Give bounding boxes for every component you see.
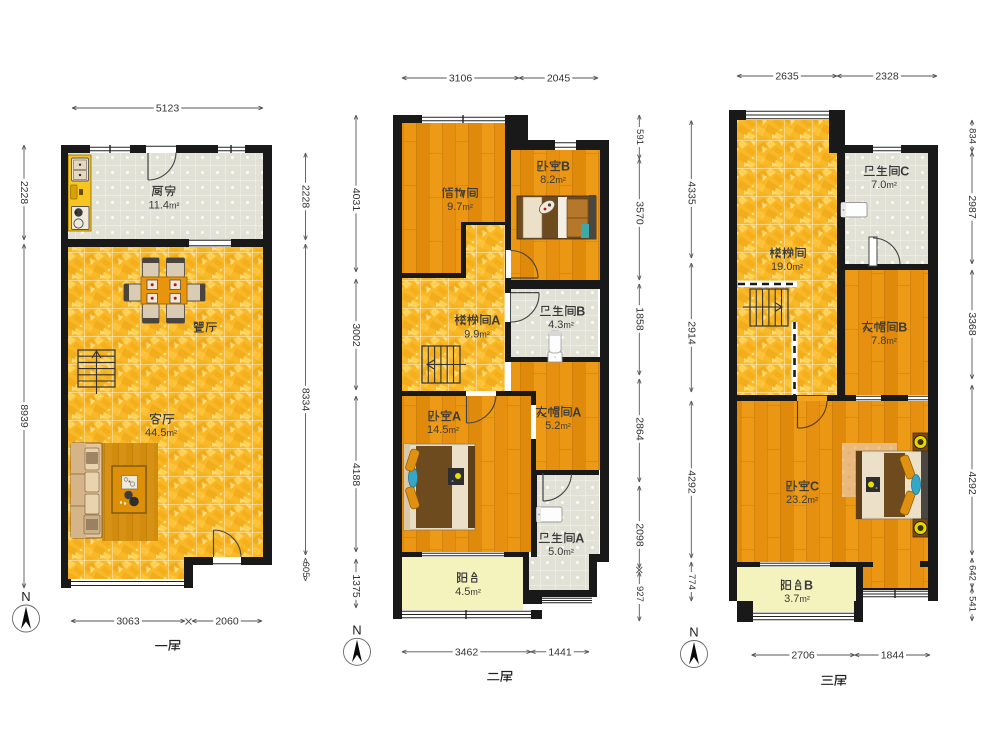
svg-text:2914: 2914 bbox=[685, 321, 697, 345]
svg-text:2635: 2635 bbox=[775, 71, 799, 83]
svg-text:591: 591 bbox=[634, 129, 645, 145]
svg-text:3462: 3462 bbox=[455, 646, 479, 658]
svg-text:3570: 3570 bbox=[633, 201, 645, 225]
svg-text:4335: 4335 bbox=[685, 181, 697, 205]
svg-text:19.0m²: 19.0m² bbox=[771, 261, 803, 273]
svg-text:2060: 2060 bbox=[215, 616, 239, 628]
svg-text:2706: 2706 bbox=[791, 650, 815, 662]
svg-text:1858: 1858 bbox=[633, 307, 645, 331]
svg-text:2045: 2045 bbox=[547, 73, 571, 85]
svg-text:C: C bbox=[900, 165, 909, 179]
svg-text:A: A bbox=[452, 410, 461, 424]
svg-text:7.0m²: 7.0m² bbox=[871, 179, 897, 191]
svg-text:774: 774 bbox=[686, 574, 697, 590]
svg-text:3063: 3063 bbox=[116, 616, 140, 628]
svg-text:44.5m²: 44.5m² bbox=[145, 427, 177, 439]
svg-text:1844: 1844 bbox=[881, 650, 905, 662]
svg-text:3002: 3002 bbox=[350, 323, 362, 347]
svg-text:B: B bbox=[561, 160, 570, 174]
svg-text:4292: 4292 bbox=[966, 471, 978, 495]
svg-text:4292: 4292 bbox=[685, 470, 697, 494]
svg-text:642: 642 bbox=[967, 565, 978, 581]
svg-text:5.2m²: 5.2m² bbox=[545, 420, 571, 432]
svg-text:2228: 2228 bbox=[300, 185, 312, 209]
svg-text:1441: 1441 bbox=[548, 646, 572, 658]
svg-text:B: B bbox=[804, 579, 813, 593]
svg-text:4.3m²: 4.3m² bbox=[548, 319, 574, 331]
svg-text:N: N bbox=[689, 625, 698, 640]
svg-text:2098: 2098 bbox=[633, 523, 645, 547]
svg-text:1375: 1375 bbox=[350, 574, 362, 598]
svg-text:14.5m²: 14.5m² bbox=[427, 424, 459, 436]
svg-text:A: A bbox=[572, 406, 581, 420]
svg-text:605: 605 bbox=[300, 562, 311, 578]
svg-text:23.2m²: 23.2m² bbox=[786, 494, 818, 506]
svg-text:3.7m²: 3.7m² bbox=[784, 593, 810, 605]
svg-text:4031: 4031 bbox=[350, 188, 362, 212]
svg-text:927: 927 bbox=[634, 586, 645, 602]
svg-text:2987: 2987 bbox=[966, 195, 978, 219]
svg-text:5.0m²: 5.0m² bbox=[548, 546, 574, 558]
svg-text:4.5m²: 4.5m² bbox=[455, 586, 481, 598]
svg-text:8334: 8334 bbox=[300, 388, 312, 412]
svg-text:3106: 3106 bbox=[449, 73, 473, 85]
svg-text:2864: 2864 bbox=[633, 417, 645, 441]
svg-text:A: A bbox=[575, 532, 584, 546]
svg-text:2228: 2228 bbox=[18, 181, 30, 205]
svg-text:834: 834 bbox=[967, 128, 978, 144]
svg-text:4188: 4188 bbox=[350, 463, 362, 487]
svg-text:B: B bbox=[576, 305, 585, 319]
svg-text:N: N bbox=[352, 622, 361, 637]
svg-text:11.4m²: 11.4m² bbox=[148, 200, 179, 212]
svg-text:8.2m²: 8.2m² bbox=[540, 174, 566, 186]
svg-text:A: A bbox=[491, 314, 500, 328]
svg-text:C: C bbox=[810, 480, 819, 494]
svg-text:3368: 3368 bbox=[966, 312, 978, 336]
svg-text:5123: 5123 bbox=[156, 103, 180, 115]
svg-text:9.9m²: 9.9m² bbox=[464, 329, 490, 341]
svg-text:7.8m²: 7.8m² bbox=[871, 335, 897, 347]
svg-text:541: 541 bbox=[967, 596, 978, 612]
svg-text:2328: 2328 bbox=[875, 71, 899, 83]
svg-text:B: B bbox=[898, 321, 907, 335]
svg-text:9.7m²: 9.7m² bbox=[447, 201, 473, 213]
svg-text:N: N bbox=[21, 589, 30, 604]
svg-text:8939: 8939 bbox=[18, 404, 30, 428]
